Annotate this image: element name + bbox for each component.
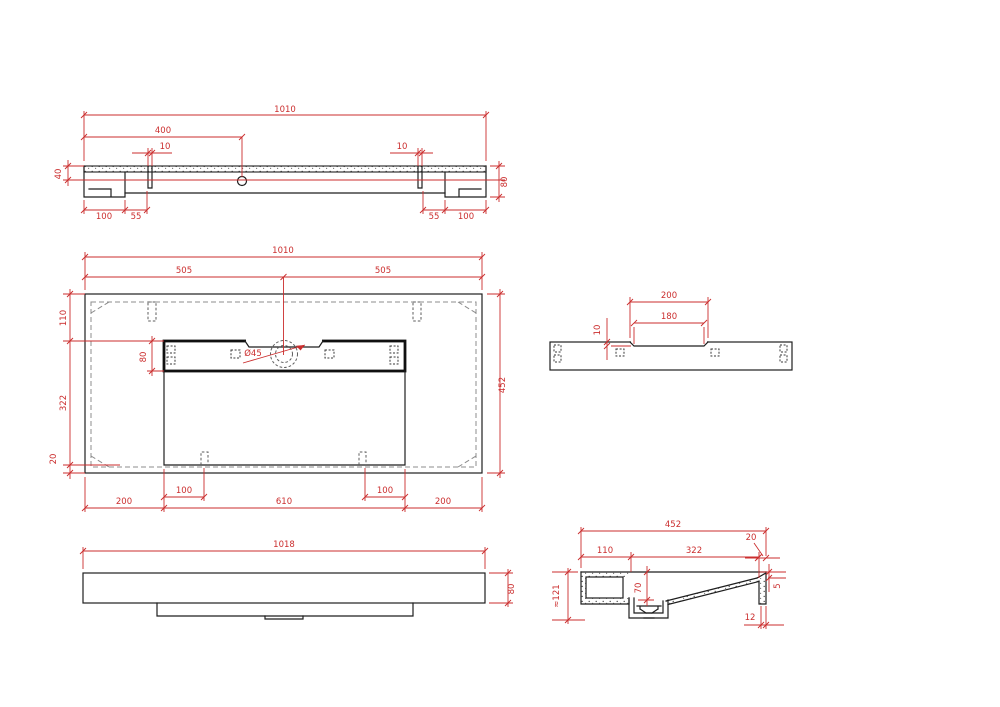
drain-sump xyxy=(629,598,668,618)
dim-plan-right-100: 100 xyxy=(377,486,393,496)
dim-deck-recess-inner: 180 xyxy=(661,312,677,322)
dim-plan-right-200: 200 xyxy=(435,497,451,507)
dim-side-total-height: ≈121 xyxy=(552,584,562,607)
bowl-outline xyxy=(164,371,405,465)
hidden-slot-left xyxy=(148,302,156,321)
dim-side-front-lip: 5 xyxy=(773,583,783,588)
drawing-sheet: 1010 400 10 10 40 80 100 55 55 100 xyxy=(0,0,1000,707)
dim-side-back-width: 110 xyxy=(597,546,613,556)
dim-plan-half-left: 505 xyxy=(176,266,192,276)
bottom-clips xyxy=(201,452,366,465)
front-view: 1018 80 xyxy=(80,540,517,619)
dim-plan-drain-dia: Ø45 xyxy=(244,348,262,359)
dim-top-edge-height: 40 xyxy=(54,169,64,180)
leader-arrow xyxy=(296,345,305,351)
dim-side-slope-width: 322 xyxy=(686,546,702,556)
dim-deck-recess-outer: 200 xyxy=(661,291,677,301)
dim-top-left-55: 55 xyxy=(131,212,142,222)
dim-plan-overall: 1010 xyxy=(272,246,294,256)
front-outline xyxy=(83,573,485,603)
dim-top-total-height: 80 xyxy=(500,177,510,188)
deck-side-view: 200 180 10 xyxy=(550,291,792,370)
bowl-underside xyxy=(157,603,413,616)
overflow-hole xyxy=(238,177,247,186)
dim-top-right-100: 100 xyxy=(458,212,474,222)
dim-top-slot-left: 10 xyxy=(160,142,171,152)
technical-drawing: 1010 400 10 10 40 80 100 55 55 100 xyxy=(0,0,1000,707)
dim-plan-top-inset: 110 xyxy=(59,310,69,326)
dim-plan-bowl-depth: 322 xyxy=(59,395,69,411)
dim-plan-bottom-inset: 20 xyxy=(49,454,59,465)
dim-deck-recess-depth: 10 xyxy=(593,325,603,336)
back-wall-inner xyxy=(586,577,623,598)
dim-front-overall: 1018 xyxy=(273,540,295,550)
dim-plan-deck-width: 80 xyxy=(139,352,149,363)
deck-recess xyxy=(164,341,405,371)
dim-plan-half-right: 505 xyxy=(375,266,391,276)
top-section-view: 1010 400 10 10 40 80 100 55 55 100 xyxy=(54,105,510,222)
hidden-slot-right xyxy=(413,302,421,321)
dim-plan-left-200: 200 xyxy=(116,497,132,507)
deck-hatched-band xyxy=(84,166,486,172)
dim-plan-bowl-width: 610 xyxy=(276,497,292,507)
dim-front-height: 80 xyxy=(507,584,517,595)
side-section-view: 452 110 322 20 70 5 12 ≈121 xyxy=(552,520,786,629)
plan-view: 1010 505 505 110 322 20 80 452 200 610 2… xyxy=(49,246,508,512)
dim-side-sump-depth: 70 xyxy=(634,583,644,594)
dim-top-overall: 1010 xyxy=(274,105,296,115)
drain-fitting xyxy=(637,606,661,618)
dim-top-hole-offset: 400 xyxy=(155,126,171,136)
dim-side-bottom-wall: 12 xyxy=(745,613,756,623)
drain-hole-circle xyxy=(276,346,293,363)
dim-plan-overall-depth: 452 xyxy=(498,377,508,393)
dim-top-left-100: 100 xyxy=(96,212,112,222)
dim-side-overall: 452 xyxy=(665,520,681,530)
dim-top-right-55: 55 xyxy=(429,212,440,222)
dim-side-top-wall: 20 xyxy=(746,533,757,543)
dim-plan-left-100: 100 xyxy=(176,486,192,496)
dim-top-slot-right: 10 xyxy=(397,142,408,152)
